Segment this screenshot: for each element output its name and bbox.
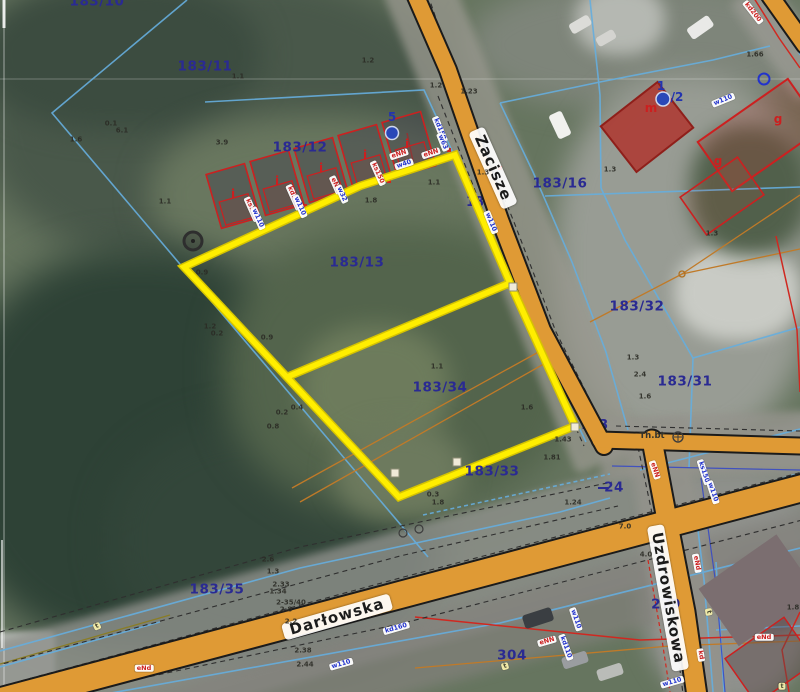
utility-line-label: kd200 [742,0,763,24]
elevation-measurement: 0.9 [261,335,273,342]
elevation-measurement: 2.6 [262,557,274,564]
elevation-measurement: 1.23 [460,89,477,96]
utility-line-label: t [705,608,713,616]
utility-line-label: eNN [421,147,441,159]
parcel-label: 304 [497,649,527,663]
label-layer: 183/10183/11183/12183/13183/16183/32183/… [0,0,800,692]
utility-line-label: eNN [537,635,557,647]
utility-line-label: t [501,662,510,670]
utility-line-label: kd110 [558,633,573,660]
utility-line-label: eNd [135,665,154,672]
elevation-measurement: 1.2 [362,58,374,65]
elevation-measurement: 1.6 [639,394,651,401]
building-use-letter: g [774,113,783,125]
elevation-measurement: 1.8 [432,500,444,507]
elevation-measurement: 1.24 [564,500,581,507]
elevation-measurement: 1.43 [554,437,571,444]
utility-line-label: eNd [692,553,702,572]
elevation-measurement: 2.4 [634,372,646,379]
utility-line-label: kd [697,648,706,662]
elevation-measurement: 1.8 [365,198,377,205]
elevation-measurement: 1.3 [706,231,718,238]
elevation-measurement: 1.3 [267,569,279,576]
parcel-label: 183/33 [465,465,520,479]
utility-line-label: ks150 [370,160,386,186]
elevation-measurement: 1.1 [428,180,440,187]
parcel-label: 183/13 [330,256,385,270]
elevation-measurement: 1.1 [431,364,443,371]
elevation-measurement: 2.38 [294,648,311,655]
parcel-label: 183/12 [273,141,328,155]
utility-line-label: w110 [484,210,499,234]
utility-line-label: w32 [335,184,349,204]
parcel-label: 183/11 [178,60,233,74]
elevation-measurement: 4.0 [640,552,652,559]
utility-line-label: w40 [394,158,414,170]
parcel-label: 183/34 [413,381,468,395]
elevation-measurement: 1.81 [543,455,560,462]
elevation-measurement: 2.8 [280,607,292,614]
building-use-letter: i [231,188,235,200]
building-use-letter: g [714,155,723,167]
elevation-measurement: 1.6 [70,137,82,144]
elevation-measurement: 1.66 [746,52,763,59]
building-use-letter: i [363,149,367,161]
surface-type-note: Th.bt [639,432,664,441]
elevation-measurement: 7.0 [619,524,631,531]
utility-line-label: w110 [569,607,582,631]
elevation-measurement: 1.1 [159,199,171,206]
utility-line-label: t [778,683,785,690]
parcel-label: 183/35 [190,583,245,597]
parcel-label: 183/32 [610,300,665,314]
elevation-measurement: 6.1 [116,128,128,135]
parcel-label: 24 [604,481,624,495]
elevation-measurement: 0.8 [267,424,279,431]
elevation-measurement: 1.34 [269,589,286,596]
elevation-measurement: 0.3 [427,492,439,499]
elevation-measurement: 1.3 [604,167,616,174]
parcel-label: 183/10 [70,0,125,9]
utility-line-label: kd160 [382,621,409,635]
street-name-label: Zacisze [468,126,518,210]
utility-line-label: eNd [755,634,774,641]
elevation-measurement: 0.4 [291,405,303,412]
point-marker-label: /2 [671,91,684,103]
utility-line-label: w110 [329,658,353,671]
elevation-measurement: 0.2 [276,410,288,417]
elevation-measurement: 0.2 [211,331,223,338]
map-canvas[interactable]: 183 183 [0,0,800,692]
elevation-measurement: 1.1 [232,74,244,81]
point-marker-label: 1 [657,80,665,92]
point-marker-label: 5 [388,111,396,123]
elevation-measurement: 1.2 [430,83,442,90]
building-use-letter: i [275,175,279,187]
elevation-measurement: 1.8 [787,605,799,612]
elevation-measurement: 1.6 [521,405,533,412]
elevation-measurement: 3.9 [216,140,228,147]
building-use-letter: m [645,102,658,114]
parcel-label: 183/16 [533,177,588,191]
elevation-measurement: 2.2 [285,619,297,626]
utility-line-label: t [92,622,101,631]
parcel-label: 183/31 [658,375,713,389]
utility-line-label: w110 [660,676,684,689]
building-use-letter: i [319,162,323,174]
utility-line-label: eNN [649,460,661,480]
utility-line-label: w110 [706,480,719,504]
elevation-measurement: 1.3 [627,355,639,362]
utility-line-label: w110 [711,93,735,108]
elevation-measurement: 0.9 [196,270,208,277]
elevation-measurement: 1.3 [477,170,489,177]
elevation-measurement: 2.44 [296,662,313,669]
